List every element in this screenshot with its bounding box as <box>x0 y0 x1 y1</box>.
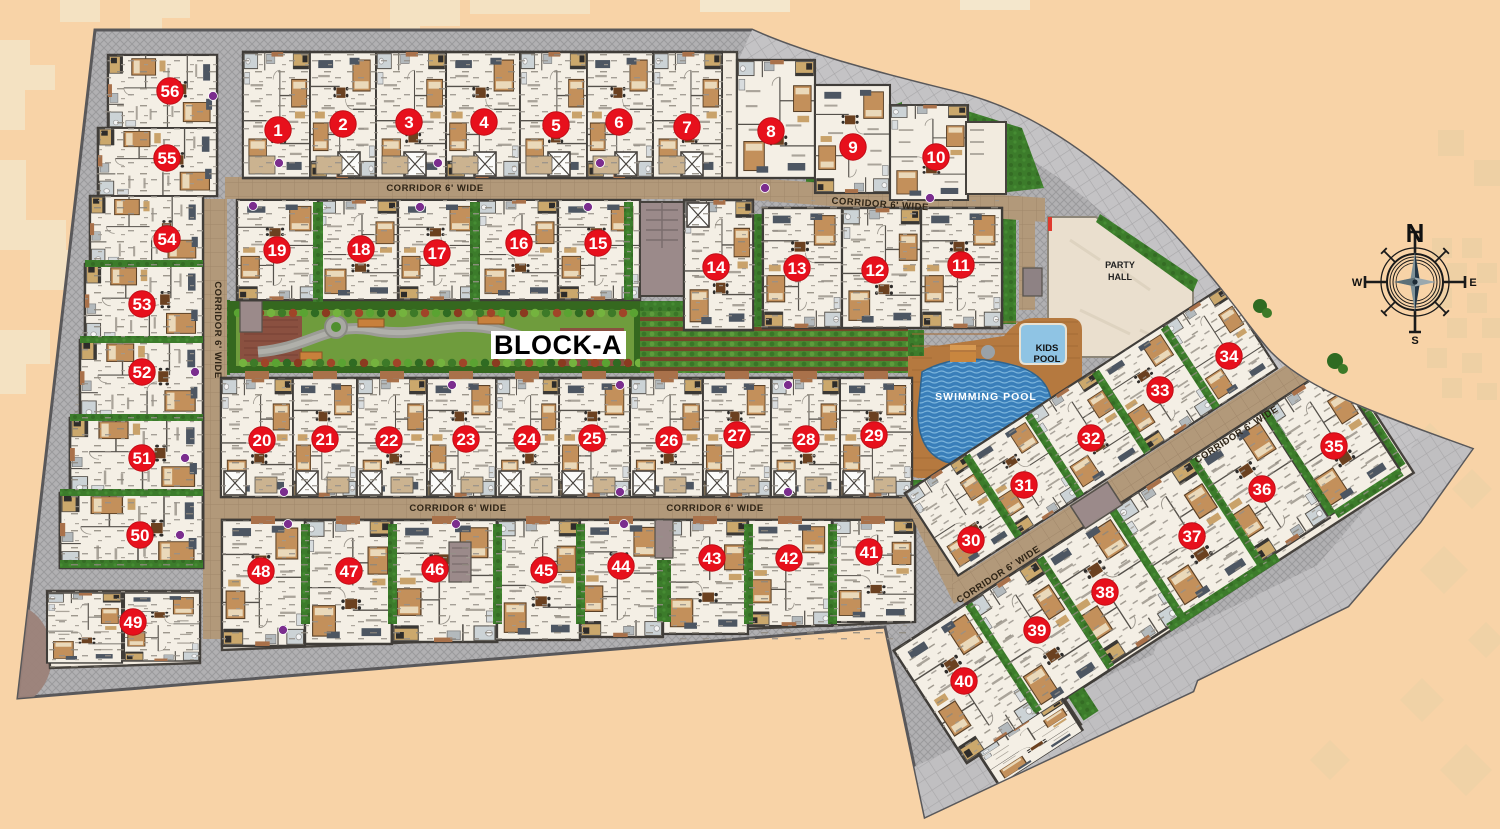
svg-text:HALL: HALL <box>1108 272 1132 282</box>
svg-text:40: 40 <box>955 672 974 691</box>
svg-text:32: 32 <box>1082 429 1101 448</box>
svg-text:15: 15 <box>589 234 608 253</box>
svg-text:56: 56 <box>161 82 180 101</box>
svg-text:8: 8 <box>766 122 775 141</box>
svg-text:24: 24 <box>518 430 537 449</box>
svg-text:54: 54 <box>158 230 177 249</box>
svg-text:23: 23 <box>457 430 476 449</box>
svg-text:47: 47 <box>340 562 359 581</box>
svg-text:21: 21 <box>316 430 335 449</box>
svg-text:CORRIDOR 6' WIDE: CORRIDOR 6' WIDE <box>386 183 483 194</box>
svg-text:27: 27 <box>728 426 747 445</box>
svg-text:14: 14 <box>707 258 726 277</box>
svg-text:CORRIDOR 6' WIDE: CORRIDOR 6' WIDE <box>409 503 506 514</box>
svg-text:51: 51 <box>133 449 152 468</box>
svg-text:11: 11 <box>952 256 970 275</box>
svg-text:39: 39 <box>1028 621 1047 640</box>
svg-text:38: 38 <box>1096 583 1115 602</box>
svg-text:43: 43 <box>703 549 722 568</box>
svg-text:45: 45 <box>535 561 554 580</box>
svg-text:N: N <box>1406 218 1425 248</box>
svg-text:42: 42 <box>780 549 799 568</box>
svg-text:CORRIDOR 6' WIDE: CORRIDOR 6' WIDE <box>212 281 223 378</box>
svg-text:PARTY: PARTY <box>1105 260 1135 270</box>
svg-text:29: 29 <box>865 426 884 445</box>
svg-text:41: 41 <box>860 543 879 562</box>
svg-text:31: 31 <box>1015 476 1034 495</box>
svg-text:46: 46 <box>426 560 445 579</box>
svg-text:55: 55 <box>158 149 177 168</box>
svg-text:25: 25 <box>583 429 602 448</box>
svg-text:E: E <box>1469 277 1476 289</box>
svg-text:35: 35 <box>1325 437 1344 456</box>
svg-text:13: 13 <box>788 259 807 278</box>
svg-text:17: 17 <box>428 244 447 263</box>
svg-text:49: 49 <box>124 613 143 632</box>
svg-text:3: 3 <box>404 113 413 132</box>
svg-text:20: 20 <box>253 431 272 450</box>
svg-text:33: 33 <box>1151 381 1170 400</box>
svg-text:50: 50 <box>131 526 150 545</box>
svg-text:9: 9 <box>848 138 857 157</box>
svg-text:4: 4 <box>479 113 489 132</box>
svg-text:6: 6 <box>614 113 623 132</box>
svg-text:30: 30 <box>962 531 981 550</box>
svg-text:10: 10 <box>927 148 946 167</box>
svg-text:28: 28 <box>797 430 816 449</box>
svg-text:5: 5 <box>551 116 560 135</box>
svg-text:BLOCK-A: BLOCK-A <box>494 330 622 360</box>
svg-text:52: 52 <box>133 363 152 382</box>
svg-text:34: 34 <box>1220 347 1239 366</box>
svg-text:KIDS: KIDS <box>1036 343 1059 354</box>
svg-text:16: 16 <box>510 234 529 253</box>
svg-text:7: 7 <box>682 118 691 137</box>
svg-text:44: 44 <box>612 557 631 576</box>
svg-text:SWIMMING POOL: SWIMMING POOL <box>935 391 1037 403</box>
svg-text:12: 12 <box>866 261 885 280</box>
svg-text:S: S <box>1411 335 1418 347</box>
svg-text:CORRIDOR 6' WIDE: CORRIDOR 6' WIDE <box>666 503 763 514</box>
svg-text:W: W <box>1352 277 1363 289</box>
svg-text:1: 1 <box>273 121 282 140</box>
svg-text:POOL: POOL <box>1034 354 1061 365</box>
svg-text:37: 37 <box>1183 527 1202 546</box>
svg-text:19: 19 <box>268 241 287 260</box>
svg-text:48: 48 <box>252 562 271 581</box>
svg-text:2: 2 <box>338 115 347 134</box>
svg-text:53: 53 <box>133 295 152 314</box>
svg-text:36: 36 <box>1253 480 1272 499</box>
svg-text:22: 22 <box>380 431 399 450</box>
svg-text:26: 26 <box>660 431 679 450</box>
svg-text:18: 18 <box>352 240 371 259</box>
